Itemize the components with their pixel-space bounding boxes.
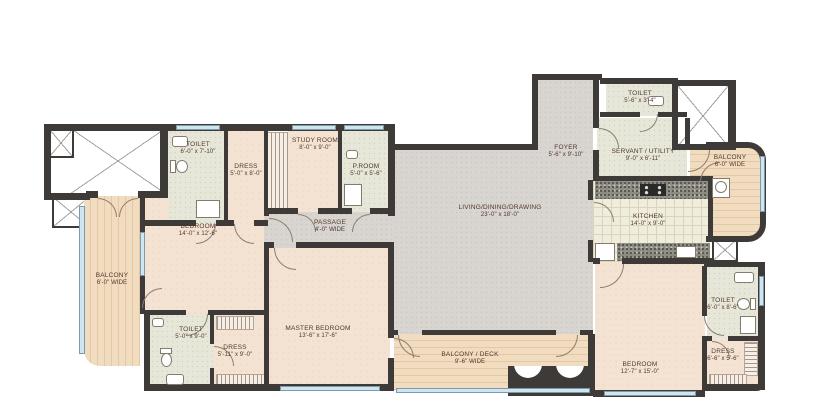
wall: [532, 74, 602, 80]
wall: [224, 130, 228, 222]
cooktop-hob: [640, 184, 666, 196]
wall: [338, 128, 342, 214]
balcony-left-floor: [84, 196, 140, 366]
wall: [593, 176, 712, 181]
wall: [264, 208, 298, 214]
scallop-notch: [514, 366, 542, 378]
dress-tl-floor: [226, 130, 266, 224]
wardrobe: [744, 342, 758, 376]
wall: [702, 384, 764, 391]
wall: [144, 384, 268, 391]
wall: [210, 314, 214, 344]
wall: [593, 258, 600, 264]
wall: [422, 330, 556, 335]
foyer-floor: [538, 80, 593, 154]
wardrobe: [266, 132, 290, 212]
wc-toilet: [737, 298, 750, 310]
wall: [216, 220, 234, 226]
window: [79, 206, 85, 354]
window: [280, 386, 380, 391]
wall: [685, 118, 690, 150]
washbasin: [172, 136, 188, 147]
wall: [672, 80, 678, 150]
wall: [86, 191, 98, 198]
window: [396, 388, 590, 393]
wall: [44, 193, 90, 200]
wall: [622, 258, 712, 264]
window: [759, 276, 764, 306]
wall: [388, 124, 395, 216]
lift-lobby: [70, 128, 166, 194]
floor-plan: TOILET 6'-0" x 7'-10" DRESS 5'-0" x 8'-0…: [0, 0, 827, 420]
washbasin: [734, 272, 754, 283]
washbasin: [346, 150, 358, 159]
wc-toilet: [750, 298, 756, 310]
wall: [208, 310, 268, 315]
washbasin: [648, 96, 664, 106]
wall: [672, 80, 734, 86]
wall: [296, 242, 394, 248]
window: [604, 391, 696, 396]
wall: [702, 340, 707, 390]
window: [140, 232, 145, 276]
wall: [144, 220, 196, 226]
wall: [318, 208, 352, 214]
wall: [704, 262, 764, 267]
washbasin: [166, 374, 184, 385]
window: [292, 125, 336, 130]
shower-tray: [344, 184, 362, 206]
shower-tray: [740, 316, 756, 334]
living-floor: [394, 150, 593, 334]
wardrobe: [216, 316, 254, 330]
wall: [144, 314, 150, 390]
wash-area-basin: [715, 181, 727, 193]
master-bedroom-floor: [268, 248, 390, 388]
shower-tray: [196, 200, 220, 218]
wc-toilet: [161, 353, 172, 367]
wall: [593, 80, 599, 128]
wall: [388, 248, 394, 334]
wall: [394, 144, 538, 150]
washbasin: [152, 318, 164, 327]
wall: [728, 336, 758, 341]
wall: [254, 220, 268, 226]
wall: [600, 112, 640, 117]
wall: [728, 80, 736, 148]
wall: [160, 124, 168, 198]
window: [760, 156, 765, 212]
window: [176, 125, 220, 130]
kitchen-sink: [676, 246, 696, 258]
wc-toilet: [176, 160, 188, 173]
wall: [144, 310, 186, 315]
scallop-notch: [556, 366, 584, 378]
wall: [264, 130, 268, 214]
study-floor: [288, 128, 342, 212]
wall: [264, 242, 269, 316]
wall: [600, 78, 678, 84]
wall: [44, 124, 51, 200]
wall: [370, 208, 394, 214]
wall: [44, 124, 166, 131]
wall: [264, 208, 269, 216]
wall: [532, 80, 538, 150]
duct-shaft: [48, 128, 74, 158]
wall: [588, 180, 593, 200]
window: [344, 125, 384, 130]
wall: [702, 266, 707, 316]
wall: [264, 314, 269, 390]
